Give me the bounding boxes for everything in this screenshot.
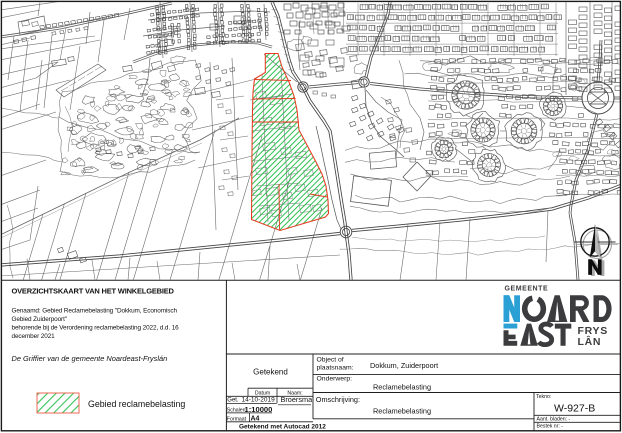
svg-text:Get.: Get.	[227, 398, 239, 404]
svg-text:Reclamebelasting: Reclamebelasting	[373, 383, 431, 392]
svg-text:Schalen: Schalen	[227, 408, 246, 414]
svg-text:Gebied reclamebelasting: Gebied reclamebelasting	[88, 399, 185, 409]
svg-text:Datum: Datum	[255, 390, 270, 396]
svg-text:Formaat: Formaat	[227, 416, 247, 422]
svg-text:De Griffier van de gemeente No: De Griffier van de gemeente Noardeast-Fr…	[12, 354, 168, 363]
svg-text:LÂN: LÂN	[578, 335, 602, 348]
svg-text:Omschrijving:: Omschrijving:	[316, 395, 360, 404]
svg-text:Broersma: Broersma	[281, 395, 314, 404]
svg-text:GEMEENTE: GEMEENTE	[505, 286, 549, 293]
svg-text:Getekend met Autocad 2012: Getekend met Autocad 2012	[239, 423, 326, 430]
svg-text:14-10-2019: 14-10-2019	[242, 397, 276, 404]
svg-text:Getekend: Getekend	[253, 368, 288, 377]
svg-text:Genaamd: Gebied Reclamebelasti: Genaamd: Gebied Reclamebelasting "Dokkum…	[12, 308, 178, 315]
svg-text:Bestek nr: -: Bestek nr: -	[537, 424, 564, 430]
svg-text:OVERZICHTSKAART VAN HET WINKEL: OVERZICHTSKAART VAN HET WINKELGEBIED	[12, 287, 175, 296]
svg-text:W-927-B: W-927-B	[554, 403, 595, 415]
svg-text:A4: A4	[251, 416, 260, 423]
svg-text:Gebied Zuiderpoort": Gebied Zuiderpoort"	[12, 316, 67, 323]
svg-text:Object of: Object of	[317, 357, 344, 364]
svg-text:Tekno:: Tekno:	[536, 394, 551, 400]
svg-text:plaatsnaam:: plaatsnaam:	[317, 365, 354, 372]
svg-text:1:10000: 1:10000	[245, 405, 273, 414]
svg-text:Onderwerp:: Onderwerp:	[317, 376, 353, 383]
svg-text:Aant. bladen: -: Aant. bladen: -	[537, 417, 571, 423]
svg-text:Dokkum, Zuiderpoort: Dokkum, Zuiderpoort	[370, 361, 438, 370]
svg-text:behorende bij de Verordening r: behorende bij de Verordening reclamebela…	[12, 325, 180, 332]
svg-text:Reclamebelasting: Reclamebelasting	[373, 407, 431, 416]
svg-text:december 2021: december 2021	[12, 333, 56, 340]
